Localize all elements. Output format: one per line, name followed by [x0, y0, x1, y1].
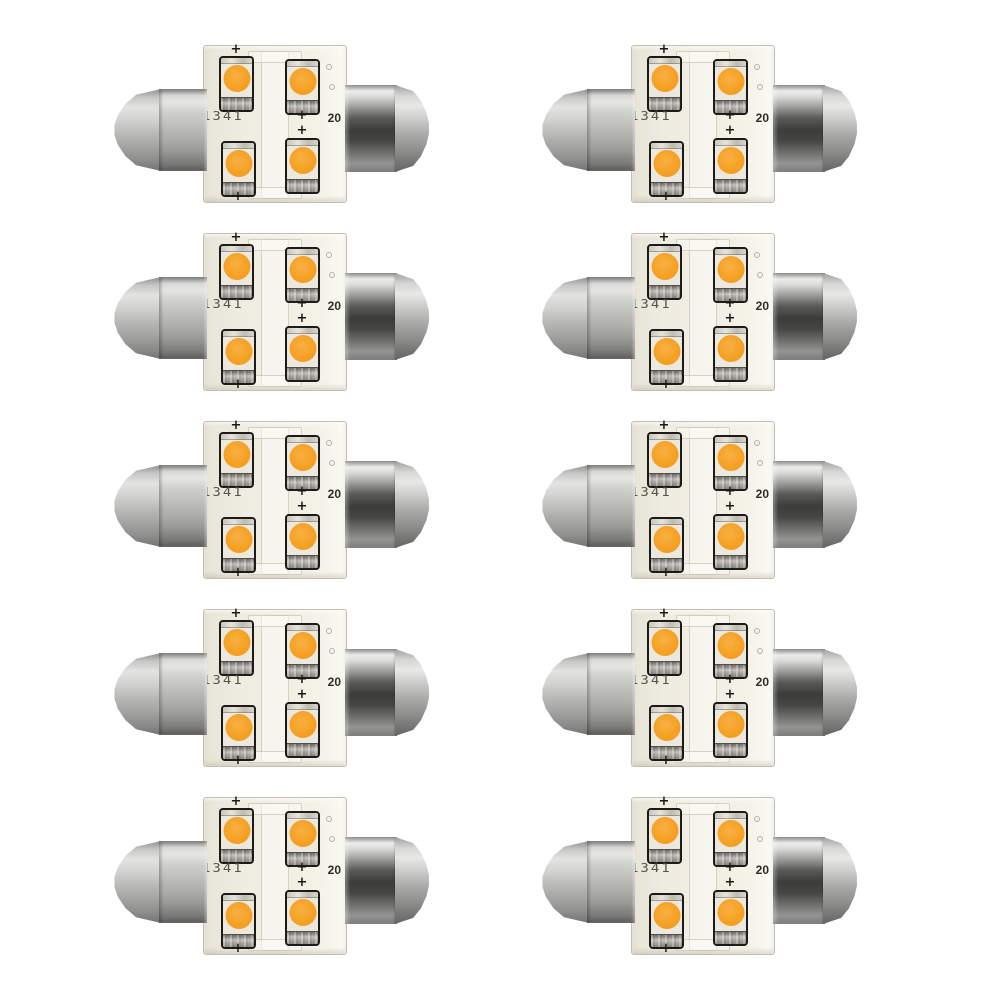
led-chip — [717, 820, 744, 847]
pcb-marking-left: 1341 — [630, 299, 672, 310]
led-electrode-bottom — [649, 661, 680, 674]
led-electrode-top — [223, 143, 254, 149]
polarity-plus-mark: + — [723, 125, 737, 137]
led-chip — [717, 68, 744, 95]
pcb-marking-right: 20 — [756, 676, 769, 688]
polarity-plus-mark: + — [723, 298, 737, 310]
via-dot — [326, 440, 332, 446]
polarity-plus-mark: + — [229, 608, 243, 620]
via-dot — [329, 84, 335, 90]
metal-endcap-right-barrel — [773, 273, 825, 360]
polarity-plus-mark: + — [229, 44, 243, 56]
metal-endcap-left-cone — [541, 277, 589, 359]
led-module-top-right — [285, 811, 320, 867]
polarity-plus-mark: + — [659, 567, 673, 579]
metal-endcap-left-cone — [541, 89, 589, 171]
polarity-plus-mark: + — [657, 232, 671, 244]
pcb-marking-right: 20 — [328, 864, 341, 876]
led-electrode-bottom — [221, 97, 252, 110]
polarity-plus-mark: + — [229, 232, 243, 244]
polarity-plus-mark: + — [659, 191, 673, 203]
led-electrode-top — [221, 622, 252, 628]
led-electrode-bottom — [287, 179, 318, 192]
led-module-top-left — [647, 244, 682, 300]
led-chip — [651, 817, 678, 844]
led-chip — [225, 714, 252, 741]
led-module-top-right — [285, 623, 320, 679]
led-module-top-left — [219, 244, 254, 300]
led-electrode-top — [715, 813, 746, 819]
via-dot — [326, 64, 332, 70]
led-electrode-top — [715, 625, 746, 631]
pcb-marking-left: 1341 — [202, 487, 244, 498]
led-module-bottom-right — [285, 138, 320, 194]
led-module-bottom-right — [713, 138, 748, 194]
led-electrode-top — [223, 331, 254, 337]
led-electrode-top — [651, 707, 682, 713]
via-dot — [757, 460, 763, 466]
metal-endcap-right-cone — [823, 649, 858, 736]
led-chip — [717, 335, 744, 362]
metal-endcap-right-barrel — [345, 461, 397, 548]
pcb-marking-left: 1341 — [630, 863, 672, 874]
led-module-bottom-right — [285, 890, 320, 946]
metal-endcap-left-barrel — [587, 841, 635, 923]
metal-endcap-right-barrel — [773, 837, 825, 924]
led-chip — [653, 526, 680, 553]
led-electrode-bottom — [287, 367, 318, 380]
metal-endcap-left-barrel — [159, 841, 207, 923]
led-electrode-top — [651, 895, 682, 901]
led-chip — [289, 335, 316, 362]
led-electrode-top — [651, 331, 682, 337]
led-module-bottom-right — [285, 702, 320, 758]
led-chip — [717, 711, 744, 738]
led-chip — [653, 150, 680, 177]
pcb-marking-right: 20 — [756, 488, 769, 500]
polarity-plus-mark: + — [657, 796, 671, 808]
led-electrode-bottom — [715, 179, 746, 192]
led-chip — [289, 632, 316, 659]
via-dot — [329, 272, 335, 278]
pcb-marking-right: 20 — [328, 300, 341, 312]
polarity-plus-mark: + — [295, 689, 309, 701]
metal-endcap-left-cone — [541, 841, 589, 923]
led-module-top-left — [219, 808, 254, 864]
polarity-plus-mark: + — [295, 862, 309, 874]
led-chip — [223, 629, 250, 656]
via-dot — [754, 252, 760, 258]
pcb-marking-left: 1341 — [202, 863, 244, 874]
polarity-plus-mark: + — [723, 501, 737, 513]
polarity-plus-mark: + — [231, 943, 245, 955]
led-electrode-top — [651, 519, 682, 525]
led-module-bottom-right — [713, 514, 748, 570]
pcb-marking-left: 1341 — [630, 487, 672, 498]
polarity-plus-mark: + — [295, 674, 309, 686]
metal-endcap-right-barrel — [345, 273, 397, 360]
led-chip — [717, 523, 744, 550]
led-chip — [653, 338, 680, 365]
metal-endcap-left-barrel — [159, 89, 207, 171]
led-chip — [223, 817, 250, 844]
led-electrode-bottom — [649, 849, 680, 862]
led-electrode-bottom — [715, 367, 746, 380]
led-chip — [225, 338, 252, 365]
festoon-led-bulb: + + + + 1341 20 — [541, 233, 858, 391]
metal-endcap-right-barrel — [345, 837, 397, 924]
metal-endcap-left-cone — [541, 653, 589, 735]
led-electrode-top — [715, 249, 746, 255]
led-electrode-bottom — [221, 473, 252, 486]
polarity-plus-mark: + — [723, 486, 737, 498]
polarity-plus-mark: + — [295, 125, 309, 137]
led-chip — [289, 899, 316, 926]
led-electrode-top — [287, 437, 318, 443]
pcb-marking-right: 20 — [328, 488, 341, 500]
via-dot — [326, 628, 332, 634]
pcb: + + + + 1341 20 — [631, 609, 775, 767]
metal-endcap-right-cone — [395, 85, 430, 172]
polarity-plus-mark: + — [723, 689, 737, 701]
led-module-top-right — [713, 811, 748, 867]
via-dot — [754, 64, 760, 70]
led-chip — [289, 820, 316, 847]
led-chip — [289, 523, 316, 550]
led-module-bottom-right — [285, 326, 320, 382]
pcb: + + + + 1341 20 — [631, 421, 775, 579]
metal-endcap-left-cone — [113, 89, 161, 171]
via-dot — [326, 252, 332, 258]
metal-endcap-right-cone — [395, 461, 430, 548]
led-electrode-top — [287, 625, 318, 631]
led-electrode-top — [287, 61, 318, 67]
polarity-plus-mark: + — [231, 379, 245, 391]
led-electrode-top — [221, 810, 252, 816]
led-module-bottom-right — [285, 514, 320, 570]
via-dot — [329, 460, 335, 466]
polarity-plus-mark: + — [295, 313, 309, 325]
via-dot — [754, 816, 760, 822]
led-electrode-bottom — [221, 285, 252, 298]
metal-endcap-left-barrel — [587, 277, 635, 359]
led-module-top-left — [219, 56, 254, 112]
led-chip — [717, 632, 744, 659]
metal-endcap-right-barrel — [773, 649, 825, 736]
led-electrode-top — [221, 434, 252, 440]
metal-endcap-right-cone — [823, 85, 858, 172]
led-chip — [289, 147, 316, 174]
polarity-plus-mark: + — [229, 420, 243, 432]
led-chip — [717, 899, 744, 926]
polarity-plus-mark: + — [231, 755, 245, 767]
led-electrode-top — [287, 249, 318, 255]
metal-endcap-left-barrel — [587, 465, 635, 547]
led-module-bottom-right — [713, 890, 748, 946]
pcb: + + + + 1341 20 — [631, 797, 775, 955]
led-electrode-top — [287, 328, 318, 334]
polarity-plus-mark: + — [231, 191, 245, 203]
led-electrode-bottom — [221, 661, 252, 674]
led-electrode-top — [649, 246, 680, 252]
led-electrode-top — [223, 895, 254, 901]
led-electrode-top — [715, 704, 746, 710]
led-chip — [651, 441, 678, 468]
polarity-plus-mark: + — [723, 862, 737, 874]
led-chip — [223, 441, 250, 468]
led-electrode-bottom — [287, 743, 318, 756]
metal-endcap-left-barrel — [159, 277, 207, 359]
led-module-bottom-right — [713, 326, 748, 382]
led-chip — [717, 256, 744, 283]
product-photo: + + + + 1341 20 — [0, 0, 1000, 1000]
led-chip — [223, 253, 250, 280]
festoon-led-bulb: + + + + 1341 20 — [541, 421, 858, 579]
pcb-marking-left: 1341 — [202, 299, 244, 310]
polarity-plus-mark: + — [229, 796, 243, 808]
polarity-plus-mark: + — [657, 608, 671, 620]
via-dot — [754, 440, 760, 446]
metal-endcap-left-cone — [113, 277, 161, 359]
led-electrode-bottom — [649, 97, 680, 110]
led-electrode-top — [221, 246, 252, 252]
led-electrode-bottom — [649, 473, 680, 486]
led-module-top-left — [219, 432, 254, 488]
led-electrode-top — [649, 58, 680, 64]
led-electrode-bottom — [287, 555, 318, 568]
led-module-top-left — [647, 808, 682, 864]
via-dot — [329, 836, 335, 842]
metal-endcap-right-barrel — [345, 85, 397, 172]
metal-endcap-right-cone — [395, 649, 430, 736]
led-electrode-top — [287, 813, 318, 819]
festoon-led-bulb: + + + + 1341 20 — [113, 797, 430, 955]
metal-endcap-right-cone — [823, 837, 858, 924]
via-dot — [754, 628, 760, 634]
led-electrode-bottom — [715, 931, 746, 944]
metal-endcap-left-barrel — [587, 89, 635, 171]
led-electrode-bottom — [221, 849, 252, 862]
led-chip — [225, 526, 252, 553]
led-chip — [651, 65, 678, 92]
led-chip — [223, 65, 250, 92]
pcb: + + + + 1341 20 — [203, 233, 347, 391]
polarity-plus-mark: + — [659, 755, 673, 767]
polarity-plus-mark: + — [295, 501, 309, 513]
led-module-top-right — [285, 247, 320, 303]
led-electrode-top — [715, 140, 746, 146]
led-module-top-right — [285, 59, 320, 115]
led-electrode-top — [287, 516, 318, 522]
led-module-top-right — [285, 435, 320, 491]
pcb-marking-left: 1341 — [630, 111, 672, 122]
led-module-bottom-right — [713, 702, 748, 758]
led-electrode-top — [715, 328, 746, 334]
led-electrode-top — [649, 434, 680, 440]
led-chip — [225, 150, 252, 177]
led-chip — [653, 902, 680, 929]
led-electrode-top — [287, 892, 318, 898]
polarity-plus-mark: + — [231, 567, 245, 579]
led-electrode-top — [287, 704, 318, 710]
led-chip — [289, 444, 316, 471]
pcb: + + + + 1341 20 — [631, 233, 775, 391]
polarity-plus-mark: + — [723, 110, 737, 122]
led-electrode-top — [223, 707, 254, 713]
led-module-top-right — [713, 435, 748, 491]
metal-endcap-right-cone — [823, 273, 858, 360]
polarity-plus-mark: + — [295, 877, 309, 889]
metal-endcap-left-barrel — [159, 653, 207, 735]
metal-endcap-left-cone — [113, 653, 161, 735]
metal-endcap-right-barrel — [345, 649, 397, 736]
via-dot — [757, 648, 763, 654]
led-chip — [653, 714, 680, 741]
metal-endcap-right-cone — [395, 273, 430, 360]
festoon-led-bulb: + + + + 1341 20 — [541, 797, 858, 955]
led-electrode-bottom — [715, 555, 746, 568]
festoon-led-bulb: + + + + 1341 20 — [113, 233, 430, 391]
led-electrode-top — [651, 143, 682, 149]
polarity-plus-mark: + — [295, 298, 309, 310]
led-module-top-left — [647, 56, 682, 112]
pcb: + + + + 1341 20 — [203, 45, 347, 203]
led-electrode-top — [649, 810, 680, 816]
polarity-plus-mark: + — [659, 943, 673, 955]
led-chip — [717, 444, 744, 471]
polarity-plus-mark: + — [723, 313, 737, 325]
polarity-plus-mark: + — [657, 420, 671, 432]
led-electrode-top — [221, 58, 252, 64]
led-electrode-bottom — [649, 285, 680, 298]
polarity-plus-mark: + — [295, 486, 309, 498]
polarity-plus-mark: + — [723, 674, 737, 686]
led-electrode-top — [715, 437, 746, 443]
festoon-led-bulb: + + + + 1341 20 — [541, 45, 858, 203]
pcb: + + + + 1341 20 — [203, 797, 347, 955]
polarity-plus-mark: + — [295, 110, 309, 122]
led-chip — [289, 68, 316, 95]
pcb-marking-left: 1341 — [202, 675, 244, 686]
led-module-top-right — [713, 623, 748, 679]
led-module-top-right — [713, 247, 748, 303]
metal-endcap-right-cone — [395, 837, 430, 924]
led-electrode-top — [715, 516, 746, 522]
led-module-top-left — [647, 620, 682, 676]
festoon-led-bulb: + + + + 1341 20 — [541, 609, 858, 767]
pcb-marking-right: 20 — [756, 112, 769, 124]
led-electrode-top — [715, 892, 746, 898]
polarity-plus-mark: + — [659, 379, 673, 391]
led-chip — [225, 902, 252, 929]
pcb: + + + + 1341 20 — [203, 421, 347, 579]
polarity-plus-mark: + — [723, 877, 737, 889]
via-dot — [757, 84, 763, 90]
led-electrode-bottom — [287, 931, 318, 944]
metal-endcap-left-cone — [113, 841, 161, 923]
pcb: + + + + 1341 20 — [203, 609, 347, 767]
led-electrode-bottom — [715, 743, 746, 756]
led-chip — [651, 253, 678, 280]
led-chip — [717, 147, 744, 174]
pcb: + + + + 1341 20 — [631, 45, 775, 203]
metal-endcap-left-cone — [113, 465, 161, 547]
via-dot — [326, 816, 332, 822]
via-dot — [757, 272, 763, 278]
via-dot — [757, 836, 763, 842]
via-dot — [329, 648, 335, 654]
pcb-marking-right: 20 — [756, 864, 769, 876]
led-module-top-left — [647, 432, 682, 488]
led-electrode-top — [715, 61, 746, 67]
metal-endcap-left-barrel — [587, 653, 635, 735]
metal-endcap-right-barrel — [773, 85, 825, 172]
pcb-marking-left: 1341 — [202, 111, 244, 122]
metal-endcap-right-cone — [823, 461, 858, 548]
metal-endcap-right-barrel — [773, 461, 825, 548]
led-electrode-top — [649, 622, 680, 628]
led-module-top-right — [713, 59, 748, 115]
led-electrode-top — [223, 519, 254, 525]
led-chip — [651, 629, 678, 656]
led-module-top-left — [219, 620, 254, 676]
pcb-marking-right: 20 — [328, 112, 341, 124]
festoon-led-bulb: + + + + 1341 20 — [113, 609, 430, 767]
led-chip — [289, 256, 316, 283]
festoon-led-bulb: + + + + 1341 20 — [113, 421, 430, 579]
pcb-marking-right: 20 — [328, 676, 341, 688]
festoon-led-bulb: + + + + 1341 20 — [113, 45, 430, 203]
led-electrode-top — [287, 140, 318, 146]
pcb-marking-left: 1341 — [630, 675, 672, 686]
polarity-plus-mark: + — [657, 44, 671, 56]
metal-endcap-left-barrel — [159, 465, 207, 547]
metal-endcap-left-cone — [541, 465, 589, 547]
pcb-marking-right: 20 — [756, 300, 769, 312]
led-chip — [289, 711, 316, 738]
